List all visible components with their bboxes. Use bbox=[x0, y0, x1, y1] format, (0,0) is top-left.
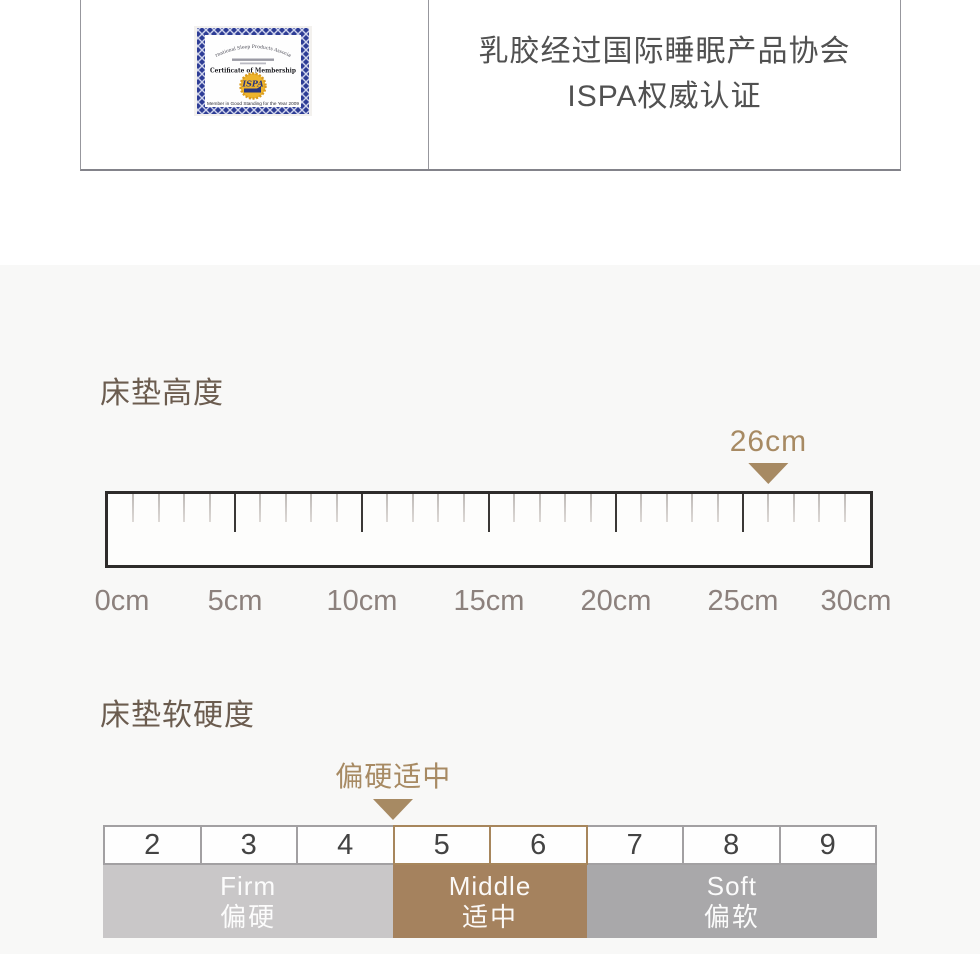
ruler-tick bbox=[742, 494, 744, 532]
ruler-tick bbox=[209, 494, 211, 522]
zone-firm: Firm偏硬 bbox=[103, 865, 393, 938]
ruler-tick bbox=[640, 494, 642, 522]
ruler-tick-label: 0cm bbox=[95, 585, 150, 618]
firmness-marker: 偏硬适中 bbox=[335, 755, 451, 820]
certification-caption: 乳胶经过国际睡眠产品协会 ISPA权威认证 bbox=[429, 0, 900, 169]
ruler-tick bbox=[463, 494, 465, 522]
ruler-tick bbox=[234, 494, 236, 532]
scale-number-cell: 5 bbox=[393, 825, 492, 865]
ruler-tick-label: 20cm bbox=[581, 585, 652, 618]
ruler-tick bbox=[767, 494, 769, 522]
ruler-tick bbox=[285, 494, 287, 522]
ruler-tick bbox=[488, 494, 490, 532]
ruler-tick bbox=[361, 494, 363, 532]
ruler-tick bbox=[437, 494, 439, 522]
ruler-tick bbox=[691, 494, 693, 522]
ruler-tick bbox=[818, 494, 820, 522]
height-section-heading: 床垫高度 bbox=[100, 368, 224, 412]
zone-middle: Middle适中 bbox=[393, 865, 587, 938]
scale-number-cell: 6 bbox=[489, 825, 588, 865]
height-marker: 26cm bbox=[730, 425, 807, 484]
ruler-tick-label: 15cm bbox=[454, 585, 525, 618]
cert-smallprint-line bbox=[240, 63, 266, 65]
certification-panel: International Sleep Products Association… bbox=[80, 0, 901, 171]
ruler-tick bbox=[615, 494, 617, 532]
zone-label-en: Middle bbox=[449, 871, 532, 902]
ruler-tick bbox=[412, 494, 414, 522]
page-root: International Sleep Products Association… bbox=[0, 0, 980, 954]
cert-smallprint-line bbox=[232, 59, 274, 61]
zone-label-en: Soft bbox=[707, 871, 757, 902]
ruler-tick bbox=[259, 494, 261, 522]
ruler-tick bbox=[132, 494, 134, 522]
caption-line-1: 乳胶经过国际睡眠产品协会 bbox=[479, 29, 851, 74]
ruler-tick-label: 5cm bbox=[208, 585, 263, 618]
ruler-tick bbox=[513, 494, 515, 522]
scale-number-cell: 7 bbox=[586, 825, 685, 865]
scale-number-cell: 3 bbox=[200, 825, 299, 865]
scale-number-cell: 2 bbox=[103, 825, 202, 865]
zone-label-zh: 偏软 bbox=[704, 902, 760, 933]
ruler-tick bbox=[539, 494, 541, 522]
caption-line-2: ISPA权威认证 bbox=[567, 74, 761, 119]
marker-triangle-icon bbox=[748, 463, 788, 484]
ruler-tick-label: 10cm bbox=[327, 585, 398, 618]
zone-label-zh: 偏硬 bbox=[220, 902, 276, 933]
height-ruler bbox=[105, 491, 873, 568]
ruler-tick bbox=[717, 494, 719, 522]
ispa-certificate-image: International Sleep Products Association… bbox=[194, 26, 312, 116]
firmness-zone-row: Firm偏硬Middle适中Soft偏软 bbox=[103, 865, 877, 938]
ruler-tick bbox=[386, 494, 388, 522]
firmness-table: 23456789 Firm偏硬Middle适中Soft偏软 bbox=[103, 825, 877, 938]
ruler-tick-label: 30cm bbox=[821, 585, 892, 618]
certificate-cell: International Sleep Products Association… bbox=[81, 0, 428, 169]
scale-number-cell: 4 bbox=[296, 825, 395, 865]
scale-number-cell: 8 bbox=[682, 825, 781, 865]
height-marker-label: 26cm bbox=[730, 425, 807, 459]
ruler-track bbox=[108, 494, 870, 565]
ruler-tick-label: 25cm bbox=[708, 585, 779, 618]
firmness-number-row: 23456789 bbox=[103, 825, 877, 865]
ruler-tick bbox=[310, 494, 312, 522]
mattress-spec-section: 床垫高度 26cm 0cm5cm10cm15cm20cm25cm30cm 床垫软… bbox=[0, 265, 980, 954]
zone-soft: Soft偏软 bbox=[587, 865, 877, 938]
ruler-tick bbox=[336, 494, 338, 522]
marker-triangle-icon bbox=[373, 799, 413, 820]
cert-footer-text: Member in Good Standing for the Year 200… bbox=[207, 101, 300, 106]
ruler-tick bbox=[158, 494, 160, 522]
ruler-tick bbox=[844, 494, 846, 522]
ruler-tick bbox=[564, 494, 566, 522]
firmness-marker-label: 偏硬适中 bbox=[335, 755, 451, 795]
scale-number-cell: 9 bbox=[779, 825, 878, 865]
ruler-tick bbox=[590, 494, 592, 522]
ruler-tick bbox=[793, 494, 795, 522]
firmness-section-heading: 床垫软硬度 bbox=[100, 690, 255, 734]
ruler-tick bbox=[666, 494, 668, 522]
ruler-tick bbox=[183, 494, 185, 522]
zone-label-en: Firm bbox=[220, 871, 276, 902]
zone-label-zh: 适中 bbox=[462, 902, 518, 933]
ruler-tick-labels: 0cm5cm10cm15cm20cm25cm30cm bbox=[0, 585, 980, 619]
